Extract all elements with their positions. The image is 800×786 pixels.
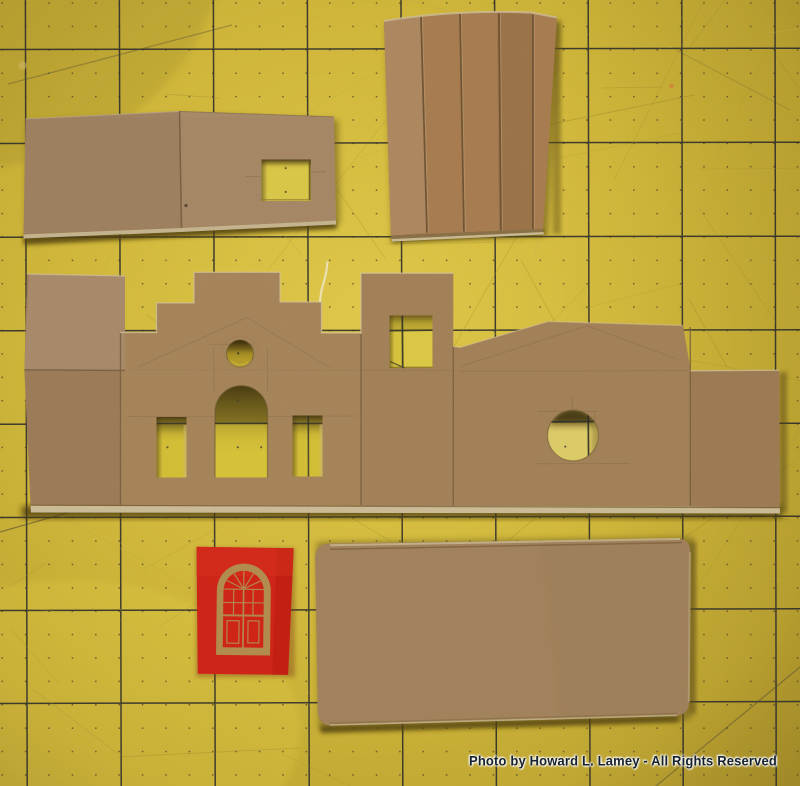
- svg-text:Photo by Howard L. Lamey - All: Photo by Howard L. Lamey - All Rights Re…: [469, 753, 777, 769]
